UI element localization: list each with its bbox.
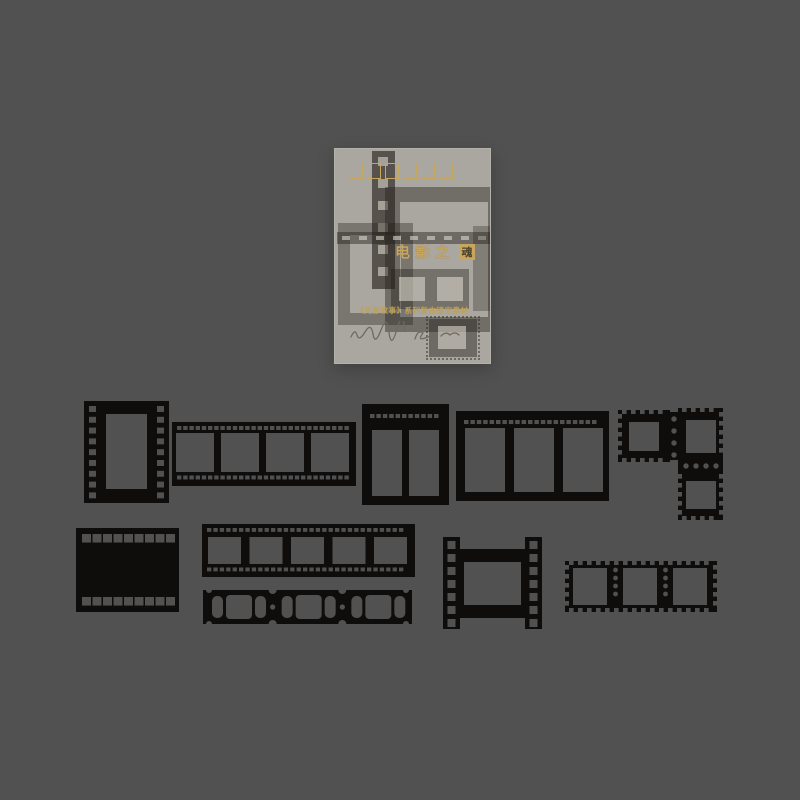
die-cut-pieces — [0, 0, 800, 800]
ticket-strip — [203, 586, 412, 628]
stamp-strip-3 — [565, 561, 717, 612]
film-frame-rails — [443, 537, 542, 629]
film-frame-vertical — [84, 401, 169, 503]
film-window-frame-3 — [456, 411, 609, 501]
film-frame-solid — [76, 528, 179, 612]
film-window-frame-2 — [362, 404, 449, 505]
filmstrip-4-frames — [172, 422, 356, 486]
product-photo: 电影之 魂 《光影故事》系列复古镂空素材 — [0, 0, 800, 800]
stamp-cluster — [618, 408, 723, 520]
filmstrip-5-frames — [202, 524, 415, 577]
